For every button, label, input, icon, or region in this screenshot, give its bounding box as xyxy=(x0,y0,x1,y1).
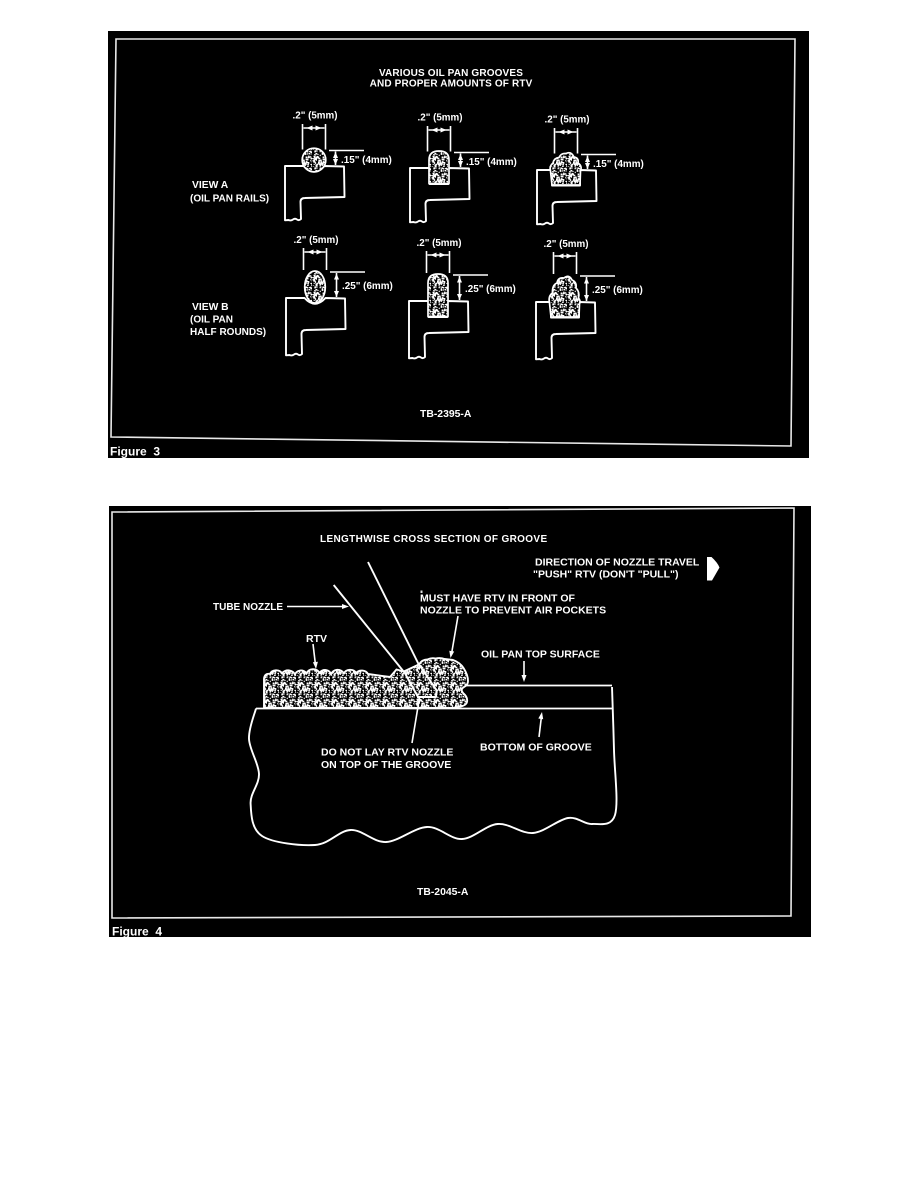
svg-text:DIRECTION OF NOZZLE TRAVEL: DIRECTION OF NOZZLE TRAVEL xyxy=(535,557,700,569)
svg-text:.2" (5mm): .2" (5mm) xyxy=(293,111,338,122)
svg-text:HALF ROUNDS): HALF ROUNDS) xyxy=(190,327,266,338)
svg-text:.25" (6mm): .25" (6mm) xyxy=(465,284,516,295)
svg-text:(OIL PAN: (OIL PAN xyxy=(190,315,233,326)
svg-text:MUST HAVE RTV IN FRONT OF: MUST HAVE RTV IN FRONT OF xyxy=(420,593,576,605)
svg-text:.2" (5mm): .2" (5mm) xyxy=(418,113,463,124)
svg-text:.2" (5mm): .2" (5mm) xyxy=(294,235,339,246)
svg-text:AND PROPER AMOUNTS OF RTV: AND PROPER AMOUNTS OF RTV xyxy=(370,79,533,90)
svg-text:DO NOT LAY RTV NOZZLE: DO NOT LAY RTV NOZZLE xyxy=(321,747,453,759)
svg-text:VIEW B: VIEW B xyxy=(192,302,229,313)
svg-text:ON TOP OF THE GROOVE: ON TOP OF THE GROOVE xyxy=(321,759,451,771)
svg-text:TB-2045-A: TB-2045-A xyxy=(417,887,469,898)
svg-text:.25" (6mm): .25" (6mm) xyxy=(342,281,393,292)
svg-text:Figure 3: Figure 3 xyxy=(110,445,160,459)
svg-text:"PUSH" RTV (DON'T "PULL"): "PUSH" RTV (DON'T "PULL") xyxy=(533,569,679,581)
svg-text:LENGTHWISE CROSS SECTION OF GR: LENGTHWISE CROSS SECTION OF GROOVE xyxy=(320,534,547,545)
svg-text:.2" (5mm): .2" (5mm) xyxy=(545,115,590,126)
svg-text:NOZZLE TO PREVENT AIR POCKETS: NOZZLE TO PREVENT AIR POCKETS xyxy=(420,605,606,617)
svg-text:TB-2395-A: TB-2395-A xyxy=(420,409,472,420)
svg-text:BOTTOM OF GROOVE: BOTTOM OF GROOVE xyxy=(480,742,592,754)
svg-text:.25" (6mm): .25" (6mm) xyxy=(592,285,643,296)
svg-text:(OIL PAN RAILS): (OIL PAN RAILS) xyxy=(190,194,269,205)
svg-text:VARIOUS OIL PAN GROOVES: VARIOUS OIL PAN GROOVES xyxy=(379,68,523,79)
svg-text:.2" (5mm): .2" (5mm) xyxy=(417,238,462,249)
svg-text:.15" (4mm): .15" (4mm) xyxy=(341,155,392,166)
svg-text:Figure 4: Figure 4 xyxy=(112,925,162,938)
svg-text:OIL PAN TOP SURFACE: OIL PAN TOP SURFACE xyxy=(481,649,600,661)
svg-text:VIEW A: VIEW A xyxy=(192,180,229,191)
svg-text:TUBE NOZZLE: TUBE NOZZLE xyxy=(213,602,283,613)
svg-text:.15" (4mm): .15" (4mm) xyxy=(466,157,517,168)
svg-text:RTV: RTV xyxy=(306,633,327,645)
svg-text:.15" (4mm): .15" (4mm) xyxy=(593,159,644,170)
svg-text:.2" (5mm): .2" (5mm) xyxy=(544,239,589,250)
